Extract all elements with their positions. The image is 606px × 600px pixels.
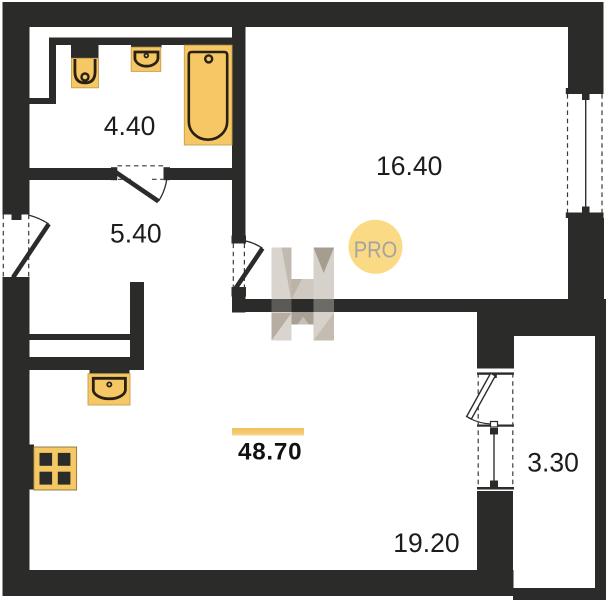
- svg-text:19.20: 19.20: [393, 528, 459, 558]
- svg-text:48.70: 48.70: [238, 439, 302, 466]
- svg-text:16.40: 16.40: [376, 151, 442, 181]
- svg-text:5.40: 5.40: [110, 218, 162, 248]
- svg-text:4.40: 4.40: [104, 111, 156, 141]
- svg-text:3.30: 3.30: [527, 447, 579, 477]
- svg-text:PRO: PRO: [354, 236, 398, 262]
